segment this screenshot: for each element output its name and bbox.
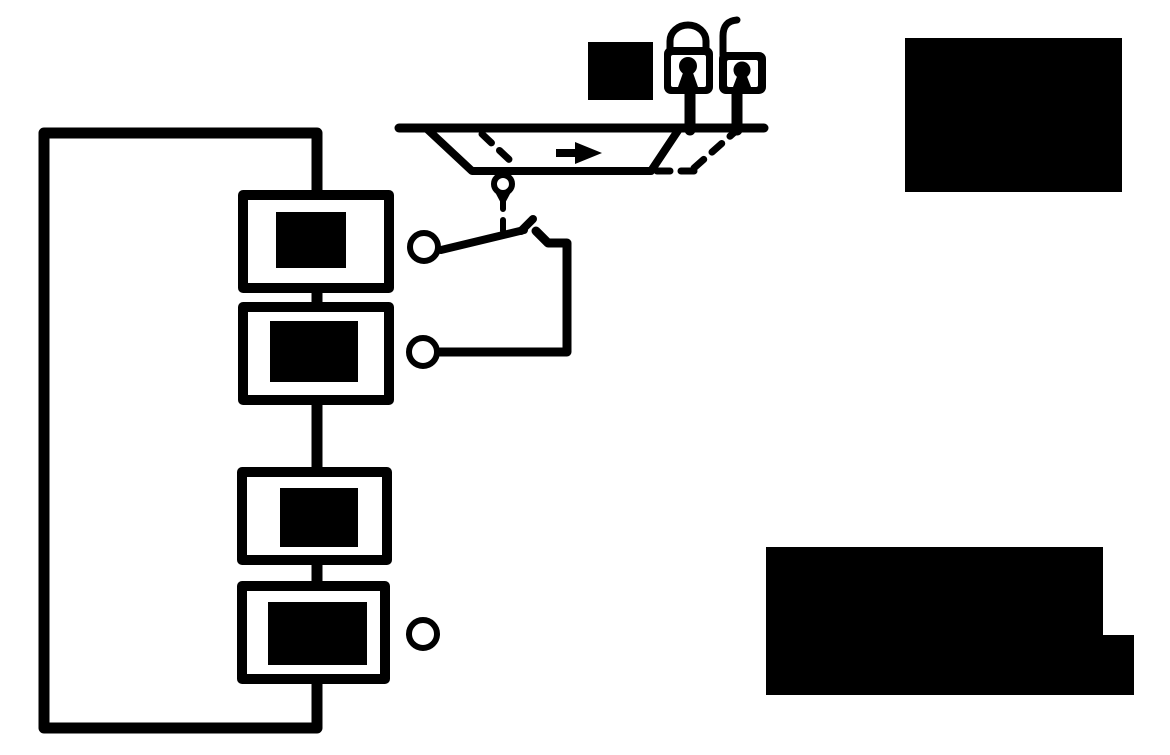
switch-blade	[441, 230, 524, 250]
terminal-circle-1	[410, 233, 438, 261]
carriage-track-assembly	[399, 128, 764, 207]
module-box-3	[242, 472, 387, 560]
carriage-outline	[427, 129, 679, 171]
redaction-block-small	[588, 42, 653, 100]
roller-stem	[495, 192, 511, 207]
carriage-ghost-left-dash	[482, 134, 516, 166]
limit-switch	[440, 196, 567, 352]
module-box-3-redacted-label	[280, 488, 358, 547]
padlock-closed-icon	[664, 25, 713, 94]
padlock-open-shackle	[723, 20, 737, 55]
terminal-circle-3	[409, 620, 437, 648]
terminal-circle-2	[409, 338, 437, 366]
padlock-open-icon	[719, 20, 766, 94]
feedback-loop-circuit	[44, 133, 438, 728]
lock-indicators	[664, 20, 766, 130]
roller-circle	[494, 175, 512, 193]
schematic-figure	[0, 0, 1170, 755]
module-box-2-redacted-label	[270, 321, 358, 382]
redaction-block-top-right	[905, 38, 1122, 192]
module-box-2	[243, 307, 389, 400]
switch-blade-tip	[521, 219, 533, 231]
redaction-block-bottom-right	[766, 547, 1134, 695]
arrow-right-icon	[556, 142, 602, 164]
module-box-4	[242, 586, 385, 679]
module-box-1	[243, 195, 389, 288]
module-box-1-redacted-label	[276, 212, 346, 268]
diagram-canvas	[0, 0, 1170, 755]
module-box-4-redacted-label	[268, 602, 367, 665]
carriage-ghost-right-dash	[694, 130, 737, 168]
